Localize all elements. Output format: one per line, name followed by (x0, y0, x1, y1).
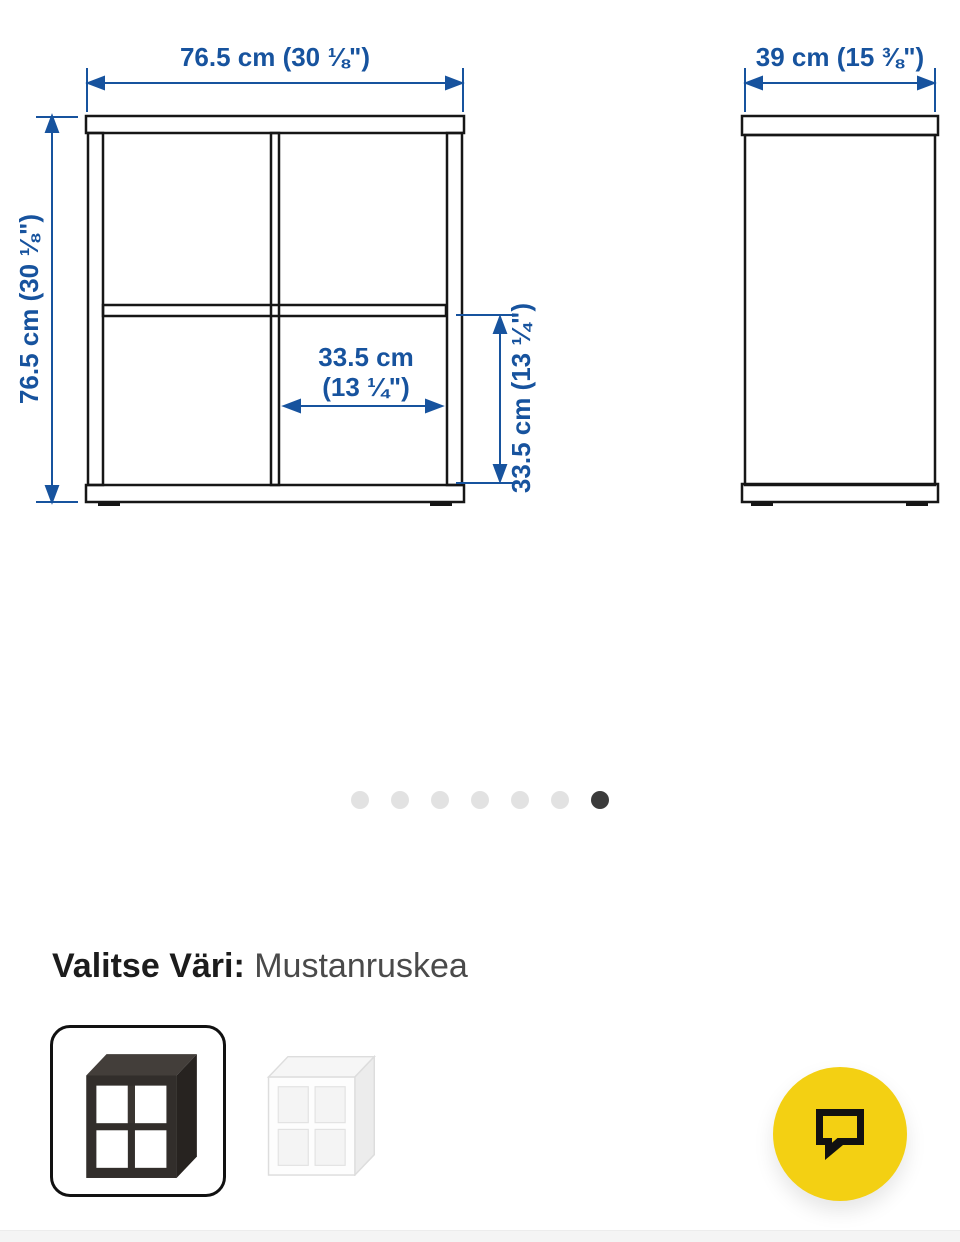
front-width-label: 76.5 cm (30 ⅛") (95, 42, 455, 72)
cell-height-label: 33.5 cm (13 ¼") (506, 258, 540, 538)
side-top-panel (742, 116, 938, 135)
front-right-panel (447, 133, 462, 485)
color-option-black-brown-selected[interactable] (50, 1025, 226, 1197)
carousel-dot-7-active[interactable] (591, 791, 609, 809)
front-center-divider (271, 133, 279, 485)
carousel-dot-2[interactable] (391, 791, 409, 809)
carousel-dot-4[interactable] (471, 791, 489, 809)
next-section-edge (0, 1230, 960, 1242)
carousel-dot-1[interactable] (351, 791, 369, 809)
color-picker-selected-value: Mustanruskea (254, 947, 468, 985)
white-shelf-thumbnail (255, 1046, 381, 1176)
cell-width-label-line1: 33.5 cm (266, 342, 466, 372)
product-dimension-diagram (0, 0, 960, 540)
front-bottom-panel (86, 485, 464, 502)
carousel-pagination (351, 791, 609, 809)
side-view-drawing (742, 116, 938, 502)
front-left-panel (88, 133, 103, 485)
carousel-dot-6[interactable] (551, 791, 569, 809)
color-picker-label: Valitse Väri: (52, 947, 245, 985)
side-body (745, 135, 935, 485)
carousel-dot-3[interactable] (431, 791, 449, 809)
side-view-feet (751, 501, 928, 506)
color-picker-heading: Valitse Väri: Mustanruskea (52, 947, 468, 986)
side-bottom-panel (742, 484, 938, 502)
color-option-white[interactable] (240, 1033, 396, 1189)
front-height-label: 76.5 cm (30 ⅛") (14, 119, 48, 499)
front-view-feet (98, 501, 452, 506)
cell-width-label-line2: (13 ¼") (266, 372, 466, 402)
dimension-lines (36, 68, 935, 502)
front-top-panel (86, 116, 464, 133)
front-view-drawing (86, 116, 464, 502)
carousel-dot-5[interactable] (511, 791, 529, 809)
product-page: 76.5 cm (30 ⅛") 39 cm (15 ⅜") 76.5 cm (3… (0, 0, 960, 1242)
chat-button[interactable] (773, 1067, 907, 1201)
front-middle-shelf (103, 305, 446, 316)
side-depth-label: 39 cm (15 ⅜") (740, 42, 940, 72)
speech-bubble-icon (815, 1108, 865, 1160)
black-brown-shelf-thumbnail (74, 1043, 202, 1179)
